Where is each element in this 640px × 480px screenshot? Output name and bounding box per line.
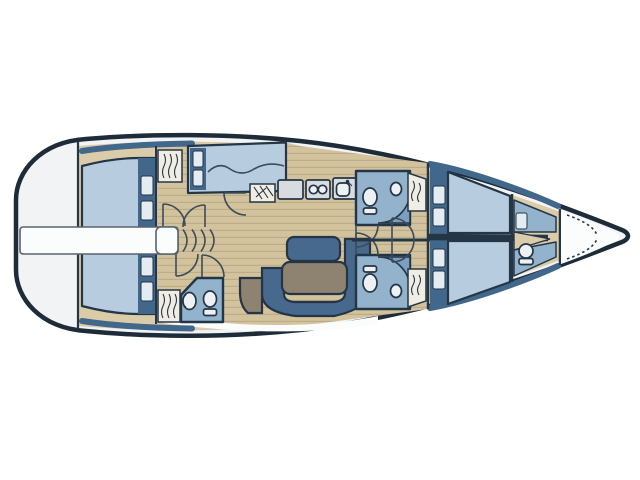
worktop <box>278 180 303 199</box>
pillow <box>433 208 445 226</box>
engine-box <box>20 227 178 254</box>
pillow <box>141 282 153 301</box>
hanging-locker <box>158 290 180 322</box>
washbasin <box>391 183 402 196</box>
icebox-locker <box>250 184 275 202</box>
hanging-locker <box>158 150 182 182</box>
toilet <box>363 266 377 292</box>
sink <box>333 178 357 199</box>
pillow <box>193 151 203 167</box>
companionway-end-cap <box>156 227 178 254</box>
pillow <box>141 201 153 220</box>
deck-plan-drawing <box>0 0 640 480</box>
salon-table <box>282 262 347 294</box>
toilet <box>519 244 533 265</box>
washbasin <box>183 293 196 310</box>
hanging-locker <box>408 269 426 307</box>
toilet <box>204 291 217 316</box>
pillow <box>193 170 203 186</box>
washbasin <box>391 285 402 298</box>
galley-port <box>278 178 357 199</box>
pillow <box>141 257 153 276</box>
pillow <box>141 176 153 195</box>
pillow <box>433 271 445 289</box>
salon-chair <box>240 278 262 313</box>
pillow <box>516 213 527 229</box>
salon-bench <box>287 237 340 261</box>
stove <box>306 180 330 199</box>
hanging-locker <box>408 173 426 211</box>
pillow <box>433 186 445 204</box>
pillow <box>433 249 445 267</box>
toilet <box>363 188 377 214</box>
yacht-floor-plan <box>0 0 640 480</box>
